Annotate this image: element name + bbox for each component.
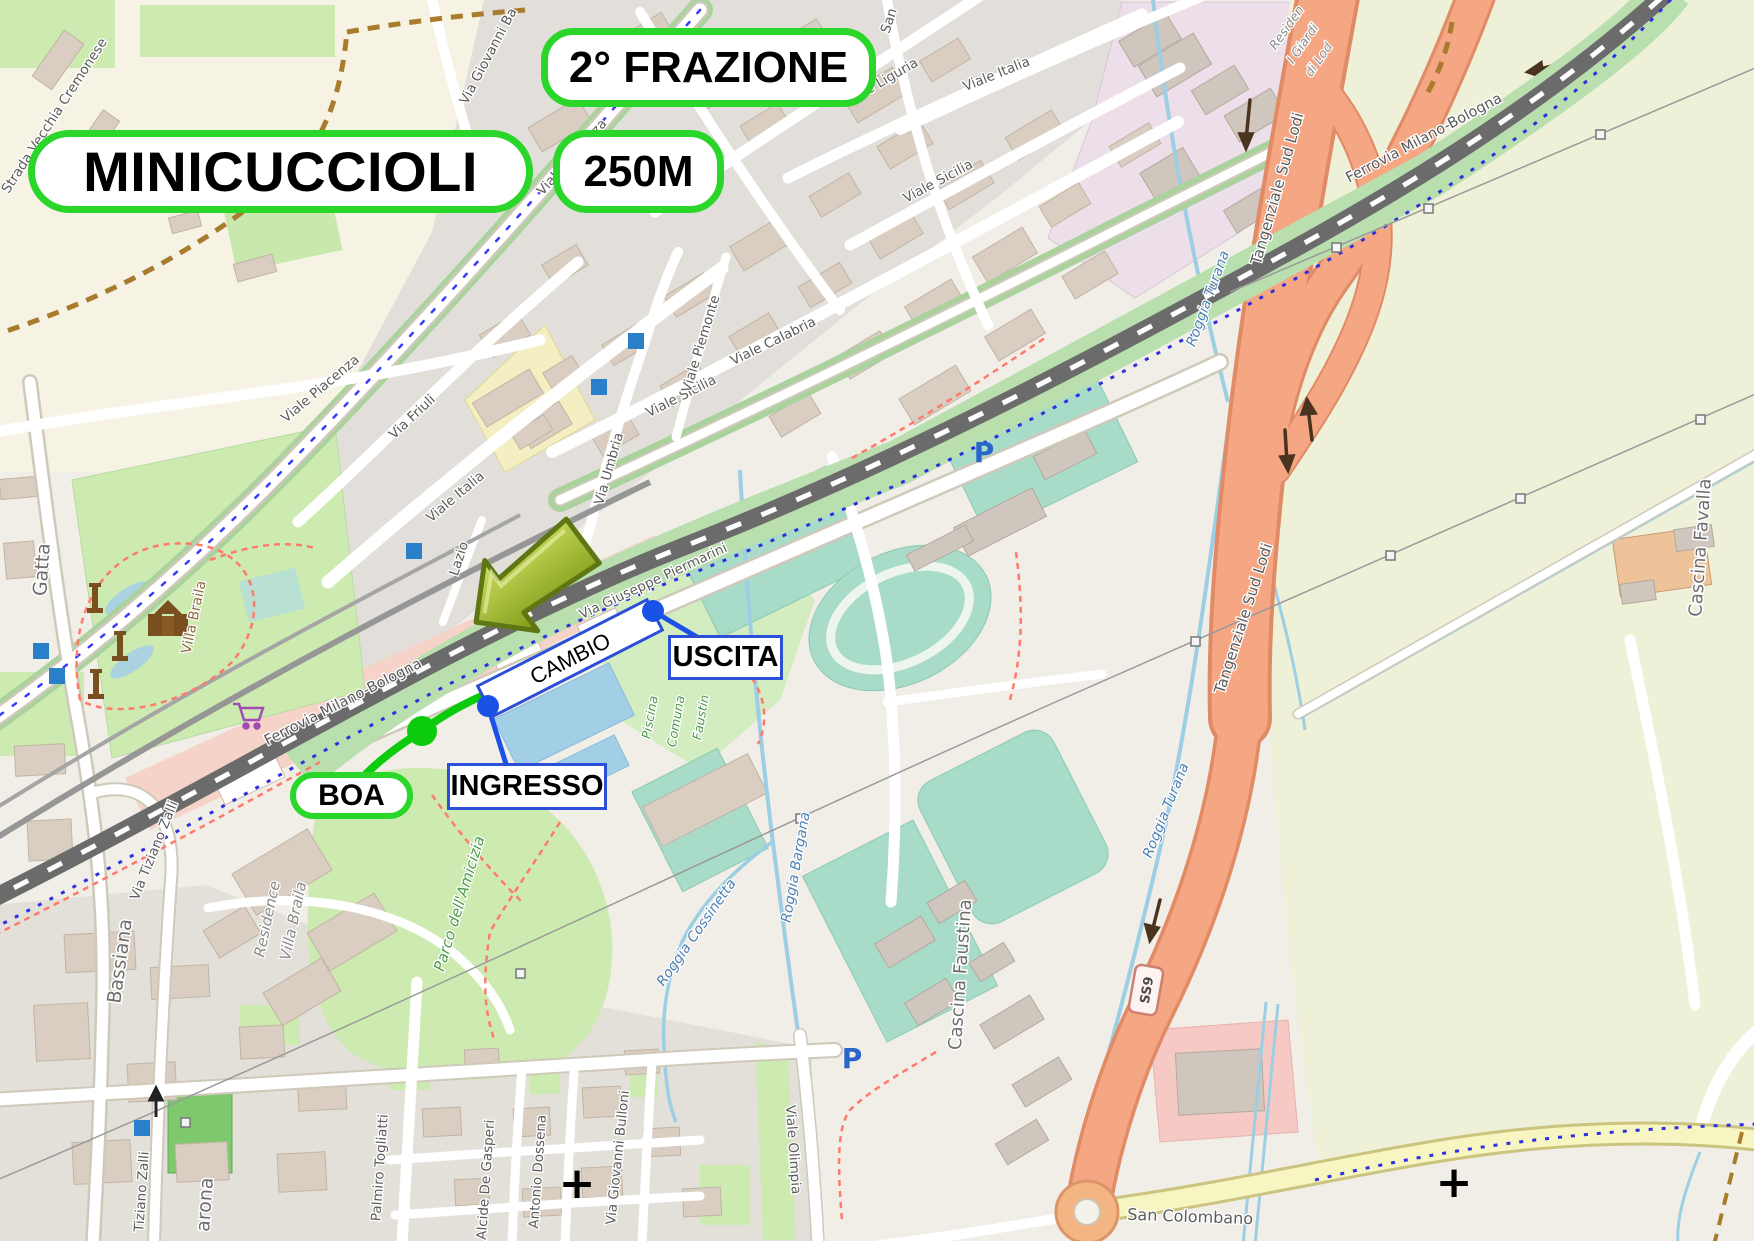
boa-label: BOA: [290, 772, 413, 819]
boa-text: BOA: [318, 779, 385, 813]
race-title-label: MINICUCCIOLI: [28, 130, 533, 213]
street-label-arona: arona: [192, 1177, 218, 1233]
uscita-point: [642, 600, 664, 622]
distance-text: 250M: [583, 147, 693, 197]
church-cross-icon: +: [559, 1158, 596, 1209]
boa-point: [407, 716, 437, 746]
parking-icon-2: P: [842, 1042, 863, 1075]
street-label-gatta: Gatta: [29, 542, 55, 596]
ingresso-label: INGRESSO: [447, 763, 607, 810]
uscita-text: USCITA: [673, 641, 779, 674]
ingresso-point: [477, 695, 499, 717]
uscita-label: USCITA: [668, 635, 783, 680]
roundabout: [1056, 1181, 1118, 1241]
water-label-turana-2: Roggia Turana: [1140, 761, 1193, 860]
ingresso-text: INGRESSO: [450, 770, 603, 803]
map-screenshot: SS9 Strada Vecchia Cremonese Via Giovann…: [0, 0, 1754, 1241]
fraction-label: 2° FRAZIONE: [541, 28, 876, 107]
fraction-text: 2° FRAZIONE: [569, 43, 848, 93]
water-label-cossinetta: Roggia Cossinetta: [654, 876, 740, 989]
parking-icon-1: P: [974, 436, 995, 469]
distance-label: 250M: [553, 130, 724, 213]
race-title-text: MINICUCCIOLI: [83, 139, 478, 204]
street-label-san-colombano: San Colombano: [1127, 1205, 1253, 1228]
water-label-bargana: Roggia Bargana: [778, 811, 813, 924]
level-crossing-icon: +: [1436, 1157, 1473, 1208]
